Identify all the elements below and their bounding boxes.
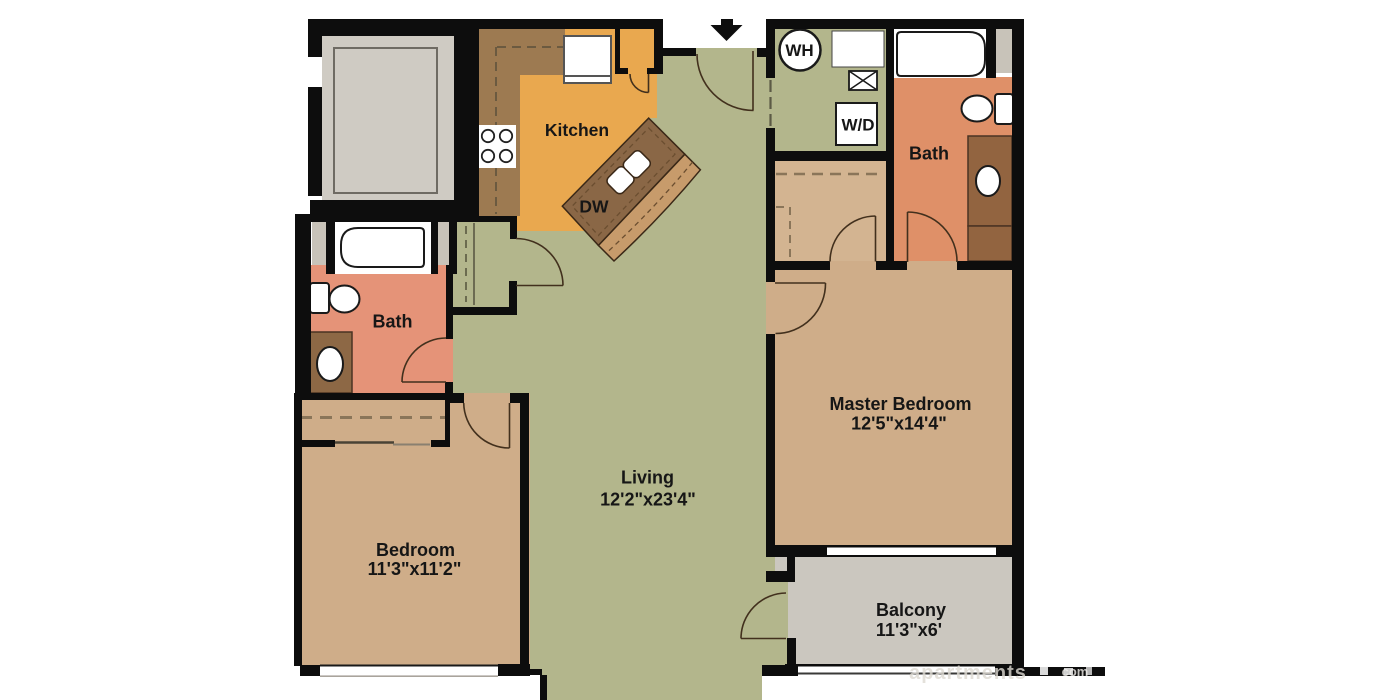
svg-text:11'3"x6': 11'3"x6' [876,620,942,640]
svg-text:com: com [1062,664,1089,679]
svg-text:Bedroom: Bedroom [376,540,455,560]
svg-text:12'5"x14'4": 12'5"x14'4" [851,414,947,434]
svg-text:Balcony: Balcony [876,600,946,620]
svg-text:W/D: W/D [841,116,874,135]
svg-text:Bath: Bath [373,312,413,332]
svg-text:Kitchen: Kitchen [545,120,609,140]
svg-text:Living: Living [621,468,674,488]
svg-text:DW: DW [579,197,609,217]
svg-text:11'3"x11'2": 11'3"x11'2" [368,559,462,579]
svg-text:12'2"x23'4": 12'2"x23'4" [600,490,696,510]
svg-text:apartments: apartments [909,662,1027,684]
svg-text:Bath: Bath [909,144,949,164]
svg-text:WH: WH [785,41,813,60]
svg-text:Master Bedroom: Master Bedroom [829,394,971,414]
